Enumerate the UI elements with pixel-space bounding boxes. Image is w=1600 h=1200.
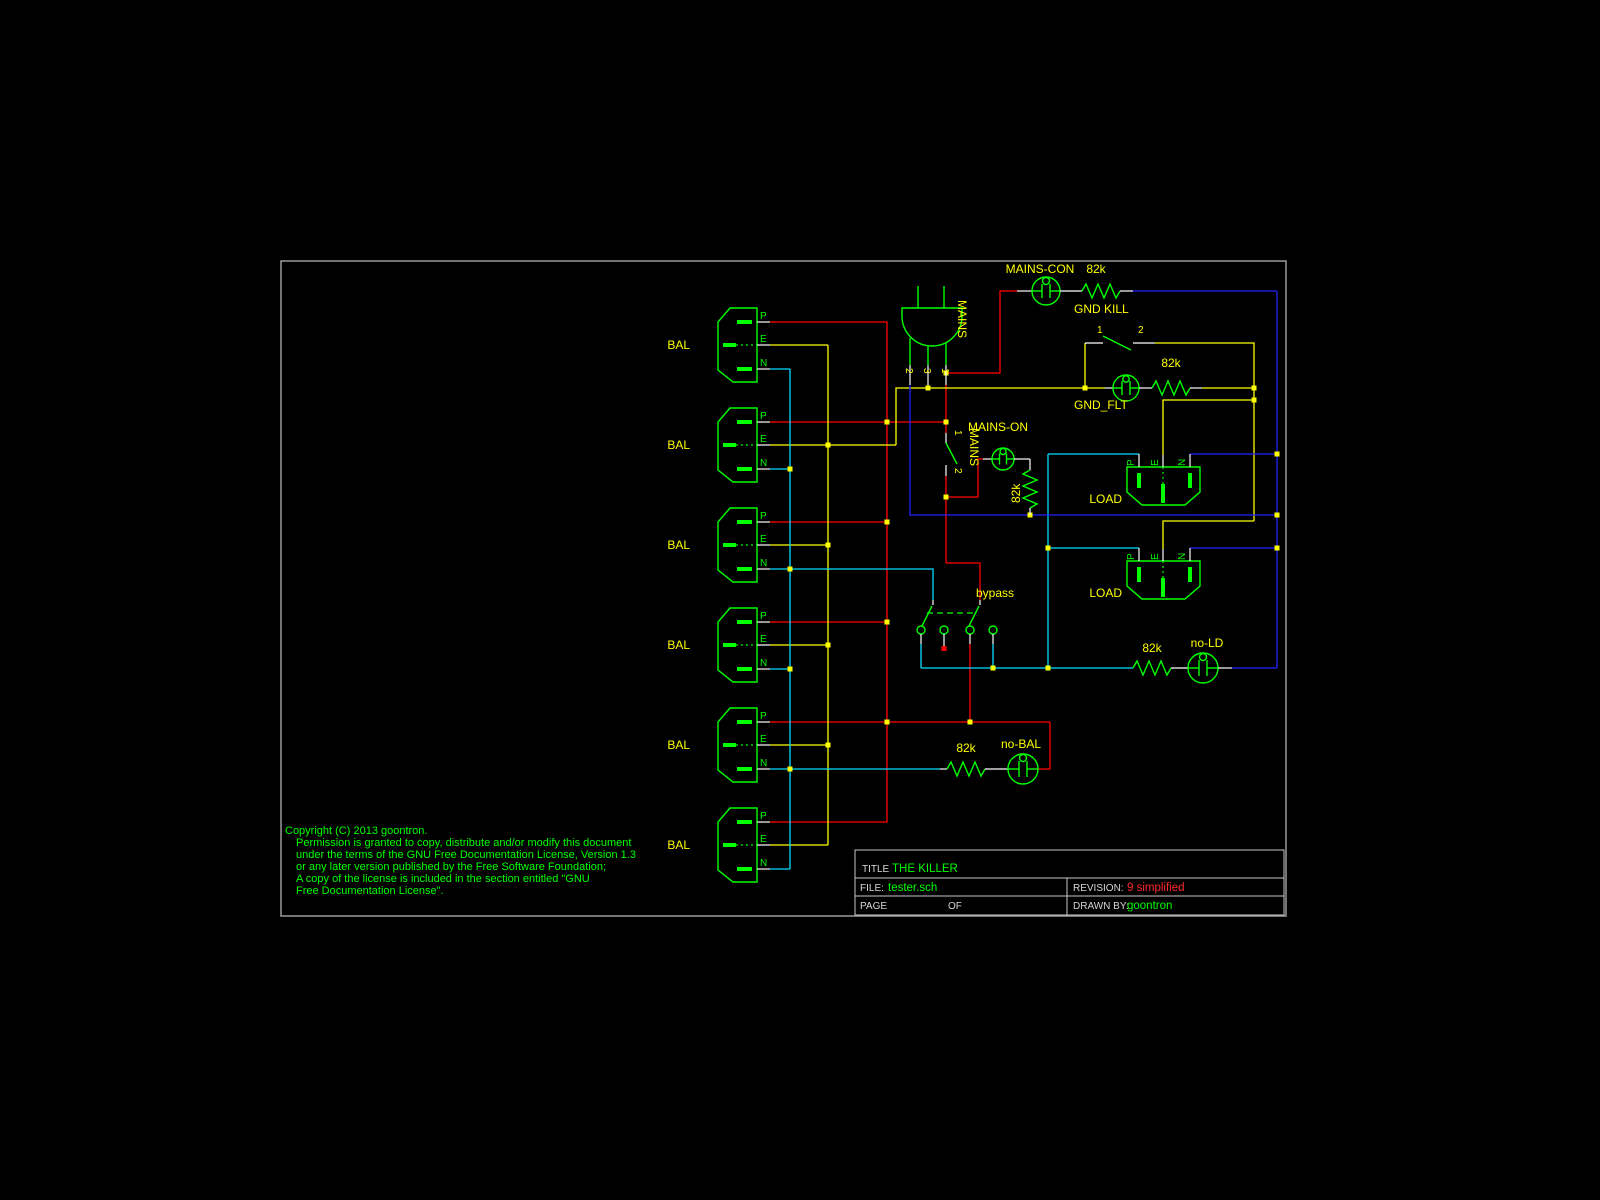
wire-bypass-live[interactable] bbox=[946, 563, 980, 600]
file-name: tester.sch bbox=[888, 882, 937, 894]
plug-pin-1: 1 bbox=[939, 368, 950, 374]
mains-on-resistor-value: 82k bbox=[1009, 483, 1023, 503]
bal1-label: BAL bbox=[667, 338, 690, 352]
bal3-pin-e: E bbox=[760, 534, 767, 545]
plug-pin-3: 3 bbox=[921, 368, 932, 374]
bal2-pin-e: E bbox=[760, 434, 767, 445]
no-bal-resistor[interactable]: 82k bbox=[940, 741, 1008, 776]
load1-pin-p: P bbox=[1126, 459, 1137, 466]
no-ld-label: no-LD bbox=[1191, 636, 1224, 650]
no-bal-lamp[interactable]: no-BAL bbox=[1001, 737, 1041, 784]
bal3-label: BAL bbox=[667, 538, 690, 552]
no-ld-lamp[interactable]: no-LD bbox=[1188, 636, 1232, 683]
bal2-pin-p: P bbox=[760, 411, 767, 422]
mains-plug[interactable]: MAINS 2 3 1 bbox=[902, 286, 969, 385]
bal-connector-5[interactable]: BAL P E N bbox=[667, 708, 770, 782]
bal3-pin-n: N bbox=[760, 558, 767, 569]
load1-pin-n: N bbox=[1177, 459, 1188, 466]
mains-plug-label: MAINS bbox=[955, 300, 969, 338]
bal1-pin-p: P bbox=[760, 311, 767, 322]
load2-label: LOAD bbox=[1089, 586, 1122, 600]
gnd-kill-pin-2: 2 bbox=[1138, 325, 1144, 336]
title-label: TITLE bbox=[862, 864, 890, 875]
bal6-label: BAL bbox=[667, 838, 690, 852]
plug-pin-2: 2 bbox=[903, 368, 914, 374]
junctions bbox=[788, 371, 1280, 772]
gnd-kill-pin-1: 1 bbox=[1097, 325, 1103, 336]
bal4-pin-n: N bbox=[760, 658, 767, 669]
revision-label: REVISION: bbox=[1073, 883, 1124, 894]
mains-con-lamp[interactable]: MAINS-CON bbox=[1006, 262, 1082, 305]
bal-connector-3[interactable]: BAL P E N bbox=[667, 508, 770, 582]
bal4-pin-p: P bbox=[760, 611, 767, 622]
gnd-flt-label: GND_FLT bbox=[1074, 398, 1128, 412]
bal4-pin-e: E bbox=[760, 634, 767, 645]
copyright-line-6: Free Documentation License". bbox=[296, 885, 444, 897]
revision-value: 9 simplified bbox=[1127, 882, 1185, 894]
no-bal-label: no-BAL bbox=[1001, 737, 1041, 751]
page-label: PAGE bbox=[860, 901, 887, 912]
mains-on-resistor[interactable]: 82k bbox=[1009, 459, 1037, 515]
schematic-canvas[interactable]: BAL P E N BAL P E N BAL P E N BAL P E N … bbox=[0, 0, 1600, 1200]
no-bal-resistor-value: 82k bbox=[956, 741, 976, 755]
copyright-line-4: or any later version published by the Fr… bbox=[296, 861, 606, 873]
bal-connector-4[interactable]: BAL P E N bbox=[667, 608, 770, 682]
bal2-label: BAL bbox=[667, 438, 690, 452]
gnd-flt-lamp[interactable]: GND_FLT bbox=[1074, 375, 1152, 412]
mains-con-resistor[interactable]: 82k bbox=[1082, 262, 1133, 298]
bal6-pin-n: N bbox=[760, 858, 767, 869]
bal2-pin-n: N bbox=[760, 458, 767, 469]
file-label: FILE: bbox=[860, 883, 884, 894]
bal5-label: BAL bbox=[667, 738, 690, 752]
bal-connector-6[interactable]: BAL P E N bbox=[667, 808, 770, 882]
bal5-pin-p: P bbox=[760, 711, 767, 722]
wire-earth-feed[interactable] bbox=[896, 388, 1105, 445]
net-neutral-return[interactable] bbox=[910, 291, 1277, 668]
bal-connector-1[interactable]: BAL P E N bbox=[667, 308, 770, 382]
schematic-sheet[interactable]: BAL P E N BAL P E N BAL P E N BAL P E N … bbox=[0, 0, 1600, 1200]
bal-connector-2[interactable]: BAL P E N bbox=[667, 408, 770, 482]
load2-pin-p: P bbox=[1126, 553, 1137, 560]
net-neutral-feed[interactable] bbox=[770, 369, 1139, 869]
wire-bal3-n-bypass[interactable] bbox=[770, 569, 933, 600]
mains-con-resistor-value: 82k bbox=[1086, 262, 1106, 276]
mains-on-label: MAINS-ON bbox=[968, 420, 1028, 434]
bal5-pin-e: E bbox=[760, 734, 767, 745]
no-ld-resistor-value: 82k bbox=[1142, 641, 1162, 655]
wire-load2-e[interactable] bbox=[1163, 521, 1254, 549]
mains-switch-pin-1: 1 bbox=[952, 430, 963, 436]
mains-switch[interactable]: MAINS 1 2 bbox=[946, 428, 981, 476]
copyright-line-3: under the terms of the GNU Free Document… bbox=[296, 849, 636, 861]
bal6-pin-p: P bbox=[760, 811, 767, 822]
unconnected-pin-cue bbox=[942, 646, 947, 651]
drawn-by-label: DRAWN BY: bbox=[1073, 901, 1129, 912]
bal4-label: BAL bbox=[667, 638, 690, 652]
mains-con-label: MAINS-CON bbox=[1006, 262, 1075, 276]
bal3-pin-p: P bbox=[760, 511, 767, 522]
load1-pin-e: E bbox=[1150, 459, 1161, 466]
copyright-line-1: Copyright (C) 2013 goontron. bbox=[285, 825, 427, 837]
no-ld-resistor[interactable]: 82k bbox=[1133, 641, 1188, 675]
sheet-title: THE KILLER bbox=[892, 863, 958, 875]
copyright-line-2: Permission is granted to copy, distribut… bbox=[296, 837, 631, 849]
copyright-notice: Copyright (C) 2013 goontron. Permission … bbox=[285, 825, 636, 897]
bal1-pin-n: N bbox=[760, 358, 767, 369]
bal6-pin-e: E bbox=[760, 834, 767, 845]
load2-pin-n: N bbox=[1177, 553, 1188, 560]
bypass-switch[interactable]: bypass bbox=[917, 586, 1014, 651]
gnd-kill-label: GND KILL bbox=[1074, 302, 1129, 316]
wire-load1-e[interactable] bbox=[1163, 400, 1254, 455]
mains-switch-pin-2: 2 bbox=[952, 468, 963, 474]
load-connector-2[interactable]: LOAD P E N bbox=[1089, 548, 1200, 600]
load-connector-1[interactable]: LOAD P E N bbox=[1089, 454, 1200, 506]
of-label: OF bbox=[948, 901, 962, 912]
bypass-label: bypass bbox=[976, 586, 1014, 600]
copyright-line-5: A copy of the license is included in the… bbox=[296, 873, 590, 885]
bal5-pin-n: N bbox=[760, 758, 767, 769]
load1-label: LOAD bbox=[1089, 492, 1122, 506]
drawn-by-value: goontron bbox=[1127, 900, 1172, 912]
gnd-flt-resistor[interactable]: 82k bbox=[1152, 356, 1202, 395]
title-block: TITLE THE KILLER FILE: tester.sch REVISI… bbox=[855, 850, 1284, 915]
load2-pin-e: E bbox=[1150, 553, 1161, 560]
gnd-flt-resistor-value: 82k bbox=[1161, 356, 1181, 370]
sheet-border bbox=[281, 261, 1286, 916]
bal1-pin-e: E bbox=[760, 334, 767, 345]
gnd-kill-switch[interactable]: GND KILL 1 2 bbox=[1074, 302, 1155, 350]
